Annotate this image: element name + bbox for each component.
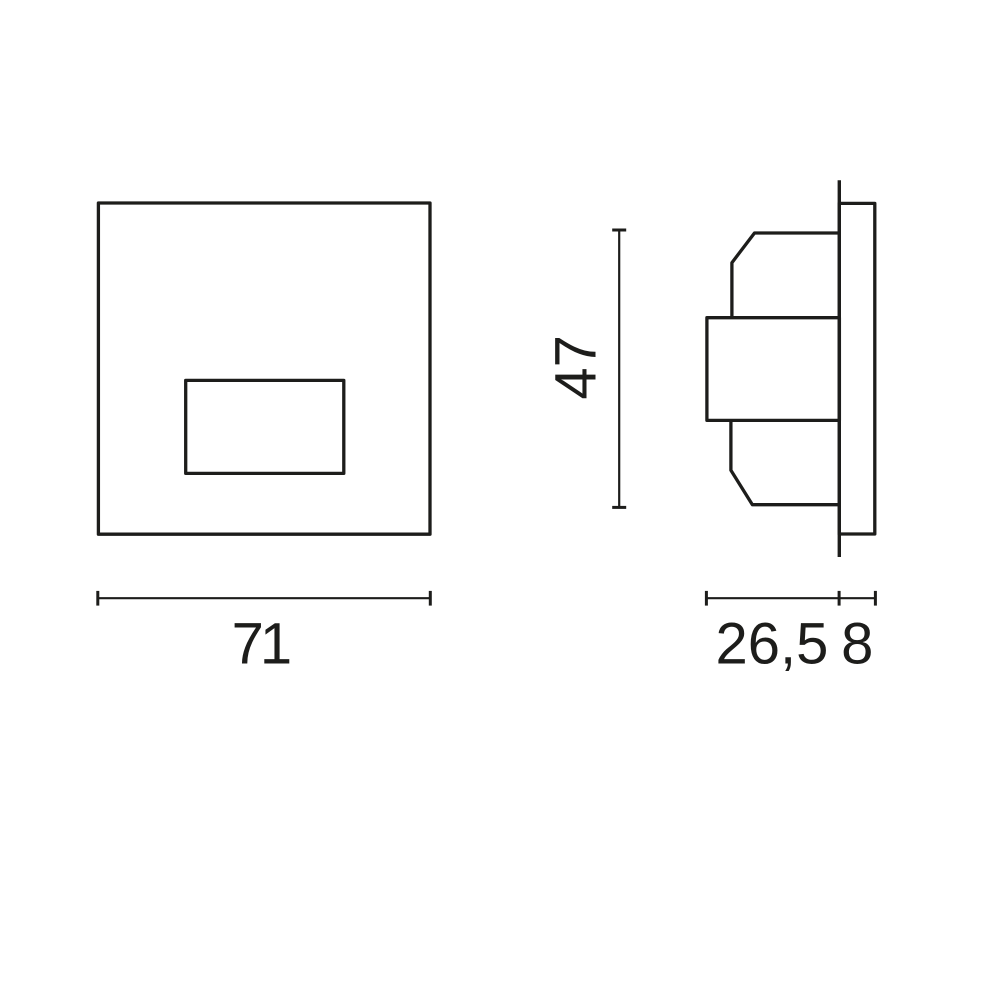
svg-text:71: 71: [232, 612, 290, 677]
svg-text:8: 8: [841, 612, 873, 677]
svg-text:26,5: 26,5: [716, 612, 829, 677]
svg-text:47: 47: [544, 335, 609, 400]
